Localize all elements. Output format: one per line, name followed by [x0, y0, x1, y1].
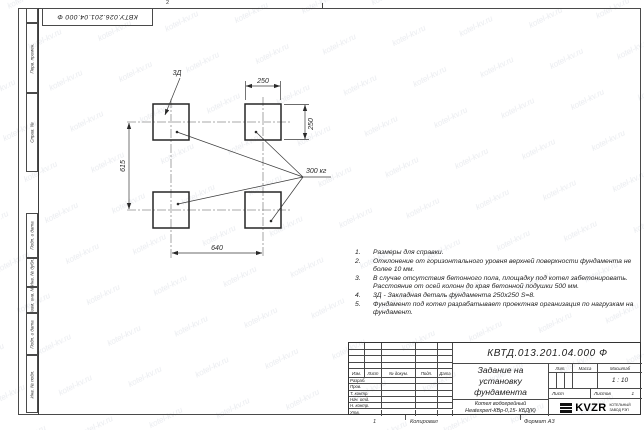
- dim-pad-width-text: 250: [256, 78, 269, 85]
- lit-label: Лит.: [549, 364, 573, 373]
- footer-format-label: Формат А3: [524, 419, 555, 425]
- dim-span-vertical-text: 615: [120, 160, 127, 172]
- col-izm: Изм.: [349, 369, 365, 378]
- footer-tick: [405, 415, 406, 420]
- footer-copied-label: Копировал: [410, 419, 438, 425]
- kvzr-logo-caption: КОТЕЛЬНЫЙ ЗАВОД РЭП: [609, 403, 630, 411]
- dim-pad-height-text: 250: [308, 118, 315, 131]
- col-data: Дата: [438, 369, 453, 378]
- col-list: Лист: [365, 369, 382, 378]
- row-utv: Утв.: [349, 410, 382, 417]
- footer-tick: [520, 415, 521, 420]
- drawing-sheet: kotel-kv.ru kotel-kv.ru 2 КВТУ.026.201.0…: [0, 0, 644, 430]
- title-block-doc-number: КВТД.013.201.04.000 Ф: [453, 343, 642, 364]
- sheet-label: Лист: [549, 389, 591, 399]
- kvzr-logo-icon: [560, 403, 572, 413]
- notes-list: 1.Размеры для справки. 2.Отклонение от г…: [352, 249, 635, 318]
- title-block-title: Задание на установку фундамента: [453, 364, 549, 400]
- note-item: 2.Отклонение от горизонтального уровня в…: [352, 258, 635, 275]
- company-logo: KVZR КОТЕЛЬНЫЙ ЗАВОД РЭП: [549, 399, 642, 416]
- foundation-pads: [153, 104, 281, 228]
- title-block: Изм. Лист № докум. Подп. Дата Разраб. Пр…: [348, 342, 641, 415]
- load-leader-dots: [176, 131, 273, 223]
- embed-label-text: 3Д: [173, 70, 182, 77]
- scale-label: Масштаб: [598, 364, 642, 373]
- load-label-text: 300 кг: [306, 168, 327, 175]
- embed-leader: [165, 78, 180, 115]
- kvzr-logo-text: KVZR: [575, 402, 606, 414]
- note-item: 3.В случае отсутствия бетонного пола, пл…: [352, 275, 635, 292]
- title-block-product: Котел водогрейный Heatexpert-КВр-0,15- К…: [453, 400, 549, 416]
- footer-copy-number: 1: [373, 419, 376, 425]
- note-item: 4.3Д - Закладная деталь фундамента 250х2…: [352, 292, 635, 301]
- sheets-cell: Листов 1: [591, 389, 642, 399]
- note-item: 5.Фундамент под котел разрабатывает прое…: [352, 301, 635, 318]
- col-docum: № докум.: [382, 369, 416, 378]
- mass-label: Масса: [573, 364, 598, 373]
- col-podp: Подп.: [416, 369, 438, 378]
- dim-span-horizontal-text: 640: [211, 245, 223, 252]
- sheets-value: 1: [631, 391, 642, 396]
- sheets-label: Листов: [594, 391, 611, 396]
- scale-value: 1 : 10: [598, 373, 642, 389]
- load-leaders: [177, 132, 331, 221]
- centerlines: [127, 97, 290, 258]
- dimension-pad-height: [284, 105, 309, 140]
- note-item: 1.Размеры для справки.: [352, 249, 635, 258]
